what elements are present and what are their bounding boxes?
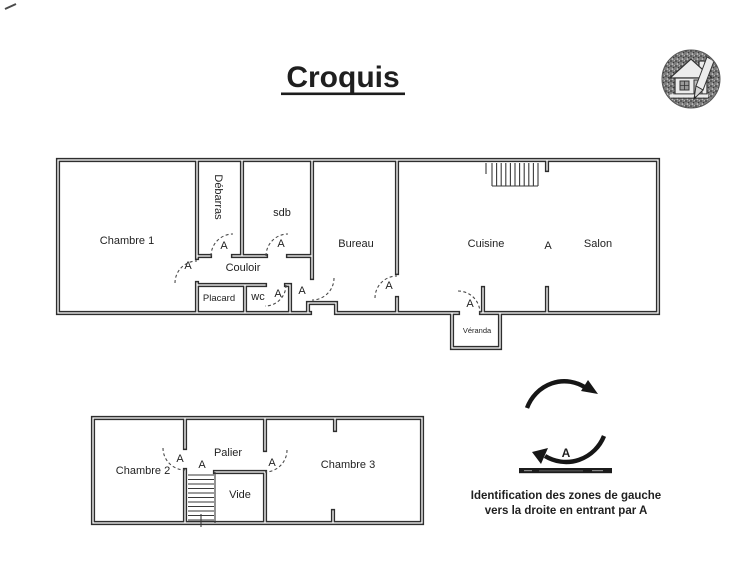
rotation-arrow-top-icon [527, 381, 586, 408]
legend-zone-marker-a: A [562, 446, 571, 460]
room-label-chambre1: Chambre 1 [100, 235, 154, 247]
room-label-bureau: Bureau [338, 238, 373, 250]
upper-floor-plan: Chambre 2 Palier Vide Chambre 3 A A A [93, 418, 422, 527]
rotation-arrowhead-top [581, 380, 598, 394]
zone-marker-a: A [385, 280, 393, 292]
croquis-floor-plan-document: Croquis [0, 0, 748, 561]
legend-redacted-bar [519, 468, 612, 473]
room-label-sdb: sdb [273, 207, 291, 219]
zone-marker-a: A [544, 240, 552, 252]
room-label-wc: wc [250, 291, 265, 303]
zone-marker-a: A [176, 453, 184, 465]
room-label-chambre2: Chambre 2 [116, 465, 170, 477]
staircase-upper-floor [188, 472, 215, 527]
room-label-couloir: Couloir [226, 262, 261, 274]
zone-marker-a: A [274, 288, 282, 300]
room-label-chambre3: Chambre 3 [321, 459, 375, 471]
room-label-cuisine: Cuisine [468, 238, 505, 250]
zone-marker-a: A [277, 238, 285, 250]
room-label-veranda: Véranda [463, 326, 492, 335]
rotation-legend: A Identification des zones de gauche ver… [471, 380, 661, 517]
rotation-arrow-bottom-icon [545, 436, 604, 462]
zone-marker-a: A [298, 285, 306, 297]
zone-marker-a: A [268, 457, 276, 469]
door-arc-entry [312, 278, 334, 300]
title-underline [281, 93, 405, 96]
staircase-ground-floor [486, 163, 538, 186]
legend-caption-line2: vers la droite en entrant par A [485, 505, 648, 517]
house-pencil-stamp-icon [662, 50, 720, 108]
ground-floor-walls [58, 160, 658, 348]
page-title: Croquis [286, 61, 399, 94]
legend-caption-line1: Identification des zones de gauche [471, 490, 661, 502]
room-label-salon: Salon [584, 238, 612, 250]
room-label-palier: Palier [214, 447, 242, 459]
ground-floor-plan: Chambre 1 Débarras sdb Couloir Placard w… [58, 160, 658, 348]
room-label-debarras: Débarras [212, 174, 224, 220]
room-label-vide: Vide [229, 489, 251, 501]
zone-marker-a: A [466, 298, 474, 310]
zone-marker-a: A [220, 240, 228, 252]
room-label-placard: Placard [203, 293, 235, 304]
zone-marker-a: A [198, 459, 206, 471]
zone-marker-a: A [184, 260, 192, 272]
scan-artifact-mark [5, 4, 16, 9]
